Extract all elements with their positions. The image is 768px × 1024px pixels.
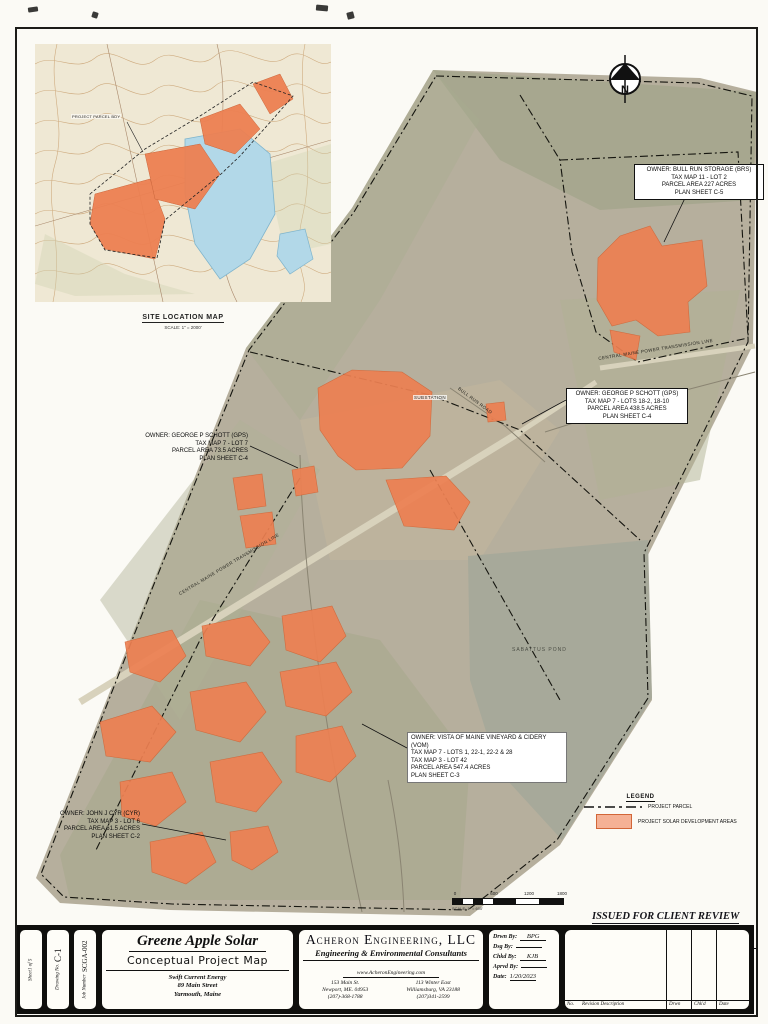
rev-col-no: No. <box>565 1000 580 1009</box>
client-address: Swift Current Energy 89 Main Street Yarm… <box>106 974 289 999</box>
solar-area-swatch <box>596 814 632 829</box>
rev-col-date: Date <box>717 1000 749 1009</box>
drawn-by-panel: Drwn By: BPG Dsg By: Chkd By: KJB Aprvd … <box>488 929 560 1010</box>
north-arrow: N <box>601 53 649 105</box>
topo-inset <box>35 44 331 302</box>
firm-office-1: 153 Main St. Newport, ME. 04953 (207)-36… <box>322 980 368 1001</box>
field-dsg-by: Dsg By: <box>493 944 555 950</box>
revision-table: No. Revision Description Drwn Chk'd Date <box>564 929 750 1010</box>
stamp-line-1: ISSUED FOR CLIENT REVIEW <box>592 911 739 924</box>
dashed-line-sample <box>584 804 642 810</box>
legend-title: LEGEND <box>626 794 654 802</box>
north-letter: N <box>621 84 629 96</box>
firm-name: Acheron Engineering, LLC <box>303 932 479 948</box>
legend-item-parcel: PROJECT PARCEL <box>584 804 752 810</box>
callout-bull-run-storage: OWNER: BULL RUN STORAGE (BRS) TAX MAP 11… <box>634 164 764 200</box>
inset-parcel-label: PROJECT PARCEL BDY <box>71 114 121 119</box>
scale-ticks: 0 600 1200 1800 <box>452 891 570 898</box>
job-number-cell: Job Number SCGA-002 <box>73 929 97 1010</box>
engineer-panel: Acheron Engineering, LLC Engineering & E… <box>298 929 484 1010</box>
sabattus-pond-label: SABATTUS POND <box>512 647 567 653</box>
sheet-number-cell: Sheet 1 of 5 <box>19 929 43 1010</box>
legend-solar-label: PROJECT SOLAR DEVELOPMENT AREAS <box>638 819 737 825</box>
sheet-meta-strip: Sheet 1 of 5 Drawing No. C-1 Job Number … <box>19 929 97 1010</box>
drawing-number-cell: Drawing No. C-1 <box>46 929 70 1010</box>
scale-bar-graphic <box>452 898 564 905</box>
callout-schott-west: OWNER: GEORGE P SCHOTT (GPS) TAX MAP 7 -… <box>118 433 248 463</box>
scale-bar: 0 600 1200 1800 SCALE: 1" = 600' <box>452 891 570 911</box>
firm-website: www.AcheronEngineering.com <box>343 969 439 978</box>
legend-parcel-label: PROJECT PARCEL <box>648 804 692 810</box>
firm-office-2: 113 Winter East Williamsburg, VA 23188 (… <box>406 980 460 1001</box>
field-chkd-by: Chkd By: KJB <box>493 953 555 961</box>
legend-item-solar: PROJECT SOLAR DEVELOPMENT AREAS <box>584 814 752 829</box>
callout-schott-east: OWNER: GEORGE P SCHOTT (GPS) TAX MAP 7 -… <box>566 388 688 424</box>
callout-vista-of-maine: OWNER: VISTA OF MAINE VINEYARD & CIDERY … <box>407 732 567 783</box>
project-title-panel: Greene Apple Solar Conceptual Project Ma… <box>101 929 294 1010</box>
project-subtitle: Conceptual Project Map <box>106 954 289 971</box>
callout-john-cyr: OWNER: JOHN J CYR (CYR) TAX MAP 3 - LOT … <box>26 811 140 841</box>
drawing-sheet: PROJECT PARCEL BDY SITE LOCATION MAP SCA… <box>0 0 768 1024</box>
rev-col-drwn: Drwn <box>667 1000 691 1009</box>
project-title: Greene Apple Solar <box>129 933 266 952</box>
inset-caption: SITE LOCATION MAP SCALE: 1" = 2000' <box>35 306 331 330</box>
scale-caption: SCALE: 1" = 600' <box>452 906 570 911</box>
site-location-map: PROJECT PARCEL BDY <box>35 44 331 302</box>
firm-tagline: Engineering & Environmental Consultants <box>303 948 479 961</box>
inset-scale: SCALE: 1" = 2000' <box>35 325 331 330</box>
inset-title: SITE LOCATION MAP <box>142 314 223 323</box>
substation-label: SUBSTATION <box>413 395 447 400</box>
legend: LEGEND PROJECT PARCEL PROJECT SOLAR DEVE… <box>584 794 752 829</box>
rev-col-description: Revision Description <box>580 1000 666 1009</box>
field-drwn-by: Drwn By: BPG <box>493 933 555 941</box>
rev-col-chkd: Chk'd <box>692 1000 716 1009</box>
title-block: Sheet 1 of 5 Drawing No. C-1 Job Number … <box>15 925 754 1014</box>
field-date: Date: 1/20/2023 <box>493 973 555 981</box>
field-aprvd-by: Aprvd By: <box>493 964 555 970</box>
